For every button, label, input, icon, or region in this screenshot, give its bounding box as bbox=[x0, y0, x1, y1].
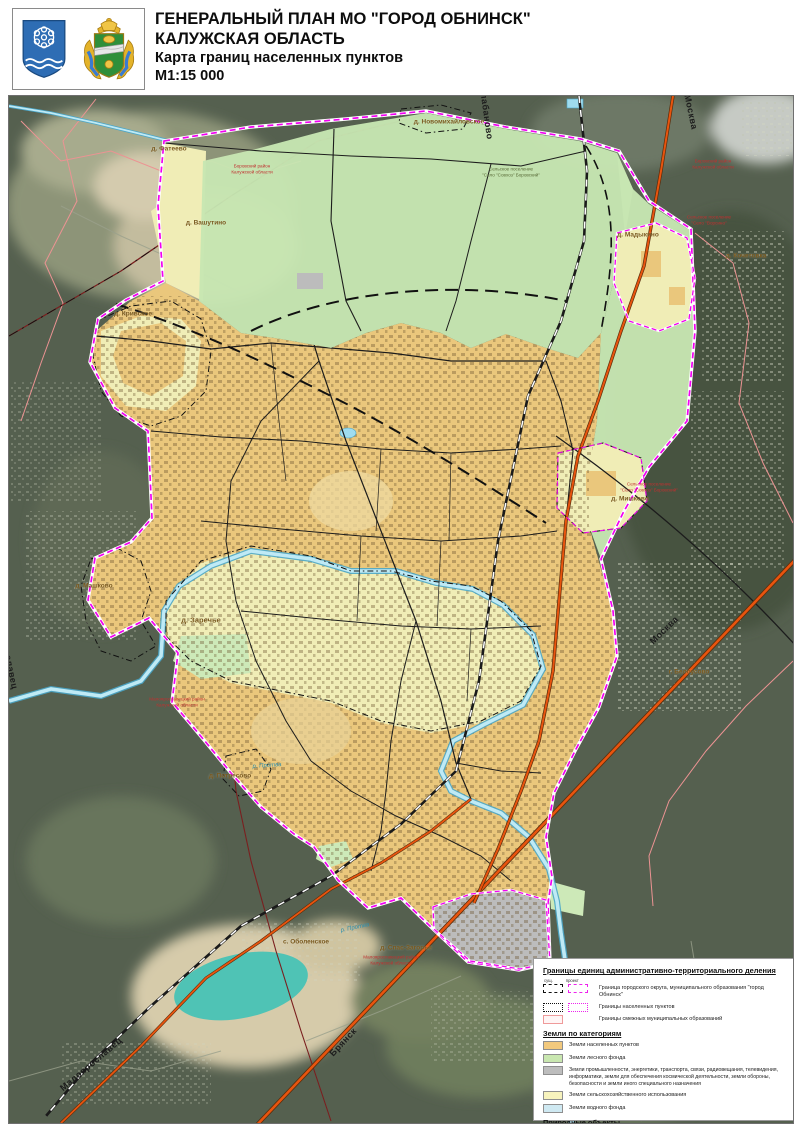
map-canvas: д. Фатеево д. Новомихайловское д. Вашути… bbox=[8, 95, 794, 1124]
forest-zone-north bbox=[199, 113, 633, 358]
general-plan-sheet: ГЕНЕРАЛЬНЫЙ ПЛАН МО "ГОРОД ОБНИНСК" КАЛУ… bbox=[0, 0, 800, 1131]
legend-label: Земли промышленности, энергетики, трансп… bbox=[569, 1066, 786, 1087]
boundary-symbol-project bbox=[568, 984, 588, 993]
urban-land-swatch bbox=[543, 1041, 563, 1050]
water-fund-swatch bbox=[543, 1104, 563, 1113]
obninsk-city-emblem bbox=[19, 17, 69, 81]
legend-label: Границы смежных муниципальных образовани… bbox=[599, 1015, 722, 1023]
legend-boundaries-title: Границы единиц административно-территори… bbox=[543, 966, 786, 975]
map-subtitle: Карта границ населенных пунктов bbox=[155, 49, 755, 67]
spacer bbox=[568, 1015, 588, 1024]
legend-label: Земли водного фонда bbox=[569, 1104, 625, 1112]
legend-row: Земли сельскохозяйственного использовани… bbox=[543, 1091, 786, 1100]
title-block: ГЕНЕРАЛЬНЫЙ ПЛАН МО "ГОРОД ОБНИНСК" КАЛУ… bbox=[155, 9, 755, 86]
legend-natural-title: Природные объекты bbox=[543, 1118, 786, 1124]
legend-row: Границы смежных муниципальных образовани… bbox=[543, 1015, 786, 1024]
industrial-patch-north bbox=[297, 273, 323, 289]
legend-row: Земли лесного фонда bbox=[543, 1054, 786, 1063]
legend-label: Границы населенных пунктов bbox=[599, 1003, 675, 1011]
map-legend: Границы единиц административно-территори… bbox=[533, 958, 794, 1121]
legend-label: Земли сельскохозяйственного использовани… bbox=[569, 1091, 686, 1099]
map-scale: М1:15 000 bbox=[155, 67, 755, 85]
forest-land-swatch bbox=[543, 1054, 563, 1063]
kaluga-oblast-emblem bbox=[80, 15, 138, 83]
legend-row: Земли населенных пунктов bbox=[543, 1041, 786, 1050]
region-title: КАЛУЖСКАЯ ОБЛАСТЬ bbox=[155, 29, 755, 49]
emblems-box bbox=[12, 8, 145, 90]
legend-label: Граница городского округа, муниципальног… bbox=[599, 984, 786, 999]
legend-row: Границы населенных пунктов bbox=[543, 1003, 786, 1012]
legend-col-project: проект bbox=[566, 978, 579, 983]
industrial-land-swatch bbox=[543, 1066, 563, 1075]
agricultural-land-swatch bbox=[543, 1091, 563, 1100]
legend-label: Земли лесного фонда bbox=[569, 1054, 625, 1062]
legend-col-existing: сущ. bbox=[544, 978, 553, 983]
legend-land-title: Земли по категориям bbox=[543, 1029, 786, 1038]
settlement-boundary-symbol-existing bbox=[543, 1003, 563, 1012]
legend-column-labels: сущ. проект bbox=[544, 978, 786, 983]
legend-label: Земли населенных пунктов bbox=[569, 1041, 639, 1049]
boundary-symbol-existing bbox=[543, 984, 563, 993]
legend-row: Земли промышленности, энергетики, трансп… bbox=[543, 1066, 786, 1087]
page-title: ГЕНЕРАЛЬНЫЙ ПЛАН МО "ГОРОД ОБНИНСК" bbox=[155, 9, 755, 29]
settlement-boundary-symbol-project bbox=[568, 1003, 588, 1012]
legend-row: Земли водного фонда bbox=[543, 1104, 786, 1113]
legend-row: Граница городского округа, муниципальног… bbox=[543, 984, 786, 999]
adjacent-boundary-symbol bbox=[543, 1015, 563, 1024]
